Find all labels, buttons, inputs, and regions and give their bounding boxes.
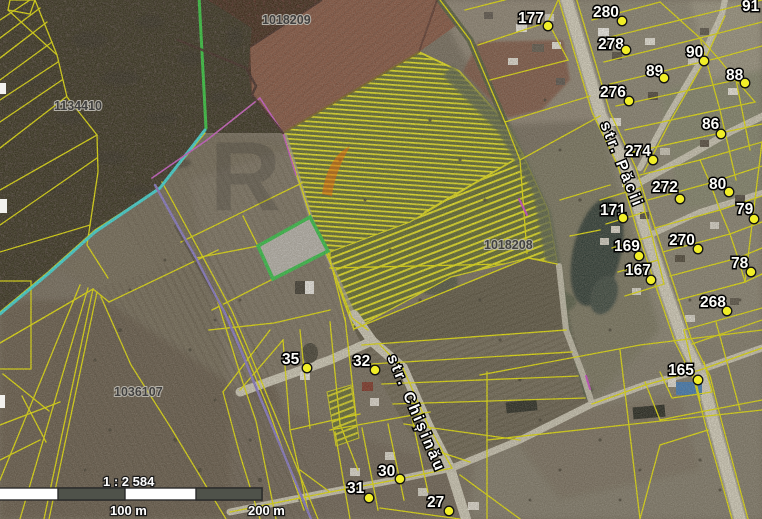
svg-text:100 m: 100 m	[110, 503, 147, 518]
svg-text:30: 30	[378, 463, 395, 480]
svg-text:1134410: 1134410	[54, 99, 102, 113]
svg-text:276: 276	[600, 84, 626, 101]
svg-text:177: 177	[518, 10, 544, 27]
svg-text:165: 165	[668, 362, 694, 379]
svg-text:1 : 2 584: 1 : 2 584	[103, 474, 155, 489]
svg-text:274: 274	[625, 143, 651, 160]
svg-text:1018208: 1018208	[484, 238, 533, 252]
svg-text:280: 280	[593, 4, 619, 21]
svg-text:278: 278	[598, 36, 624, 53]
svg-text:35: 35	[282, 351, 300, 368]
svg-text:80: 80	[709, 176, 726, 193]
svg-text:1036107: 1036107	[114, 385, 163, 399]
svg-text:91: 91	[742, 0, 760, 15]
svg-text:270: 270	[669, 232, 695, 249]
svg-text:31: 31	[347, 480, 365, 497]
svg-text:R: R	[210, 121, 281, 231]
svg-text:1018209: 1018209	[262, 13, 311, 27]
svg-text:78: 78	[731, 255, 749, 272]
svg-text:27: 27	[427, 494, 444, 511]
svg-text:272: 272	[652, 179, 678, 196]
svg-text:32: 32	[353, 353, 370, 370]
svg-text:200 m: 200 m	[248, 503, 285, 518]
